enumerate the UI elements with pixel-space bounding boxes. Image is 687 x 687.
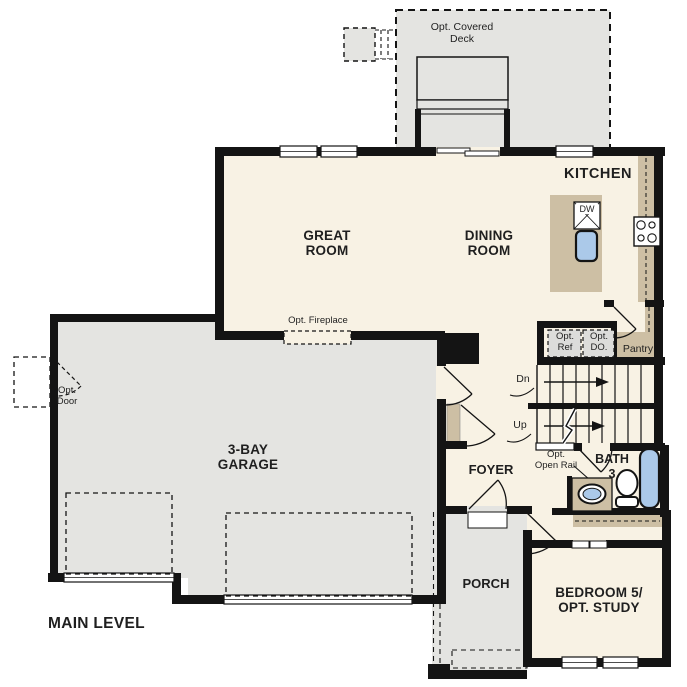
vanity-sink-icon xyxy=(572,478,612,511)
garage-entry-opening xyxy=(436,366,447,399)
floor-plan: Opt. Covered Deck KITCHEN GREAT ROOM DIN… xyxy=(0,0,687,687)
hall-closet-shelf xyxy=(447,404,460,446)
opt-door-stoop xyxy=(14,357,50,407)
wall-right-bath xyxy=(660,445,669,517)
bedroom5-label: BEDROOM 5/ OPT. STUDY xyxy=(546,585,652,615)
level-title: MAIN LEVEL xyxy=(48,615,188,632)
opt-ref-label: Opt. Ref xyxy=(550,332,580,353)
range-icon xyxy=(634,217,660,246)
wall-garage-top xyxy=(50,314,220,322)
opt-fireplace-label: Opt. Fireplace xyxy=(277,316,359,327)
bathtub-icon xyxy=(640,449,659,508)
deck-label: Opt. Covered Deck xyxy=(427,22,497,46)
kitchen-sink-icon xyxy=(576,231,597,261)
pantry-label: Pantry xyxy=(617,344,659,356)
stairs-up-label: Up xyxy=(509,420,531,432)
porch-label: PORCH xyxy=(454,577,518,592)
opt-open-rail-label: Opt. Open Rail xyxy=(524,450,588,471)
bath3-label: BATH 3 xyxy=(588,452,636,482)
wall-vanity-left xyxy=(567,476,572,512)
wall-porch-corner xyxy=(428,664,450,679)
wall-closet-bottom-right xyxy=(606,540,662,548)
porch-floor xyxy=(432,512,527,672)
wall-porch-bottom xyxy=(440,670,527,679)
dishwasher-label: DW xyxy=(576,204,598,214)
wall-greatroom-left xyxy=(215,147,224,340)
wall-kitchen-bottom-b xyxy=(604,300,614,307)
foyer-label: FOYER xyxy=(459,463,523,478)
opt-door-label: Opt. Door xyxy=(49,386,85,407)
wall-right-main xyxy=(654,147,663,448)
front-door-sill xyxy=(468,512,507,528)
kitchen-label: KITCHEN xyxy=(548,166,648,182)
wall-bath-top xyxy=(610,443,665,451)
deck-side-stoop xyxy=(344,28,375,61)
wall-kitchen-bottom-a xyxy=(645,300,664,307)
stairs-mid-landing xyxy=(528,403,654,409)
wall-right-bedroom xyxy=(662,510,671,667)
great-room-label: GREAT ROOM xyxy=(296,228,358,258)
garage-label: 3-BAY GARAGE xyxy=(214,442,282,472)
dining-room-label: DINING ROOM xyxy=(457,228,521,258)
closet-door-2 xyxy=(590,541,607,548)
opt-fireplace-box xyxy=(284,331,351,344)
wall-garage-bottom-mid xyxy=(172,595,228,604)
wall-nook-top xyxy=(537,321,617,328)
wall-closet-bottom-left xyxy=(523,540,573,548)
wall-garage-bottom-right xyxy=(410,595,446,604)
wall-stairs-top xyxy=(537,357,665,365)
opt-do-label: Opt. DO. xyxy=(584,332,614,353)
closet-door-1 xyxy=(572,541,589,548)
sliding-door-panel-b xyxy=(465,151,499,156)
wall-bedroom-left xyxy=(523,530,532,667)
wall-hall-closet-bottom xyxy=(445,441,467,449)
stairs-down-label: Dn xyxy=(512,374,534,386)
wall-garage-left xyxy=(50,314,58,582)
